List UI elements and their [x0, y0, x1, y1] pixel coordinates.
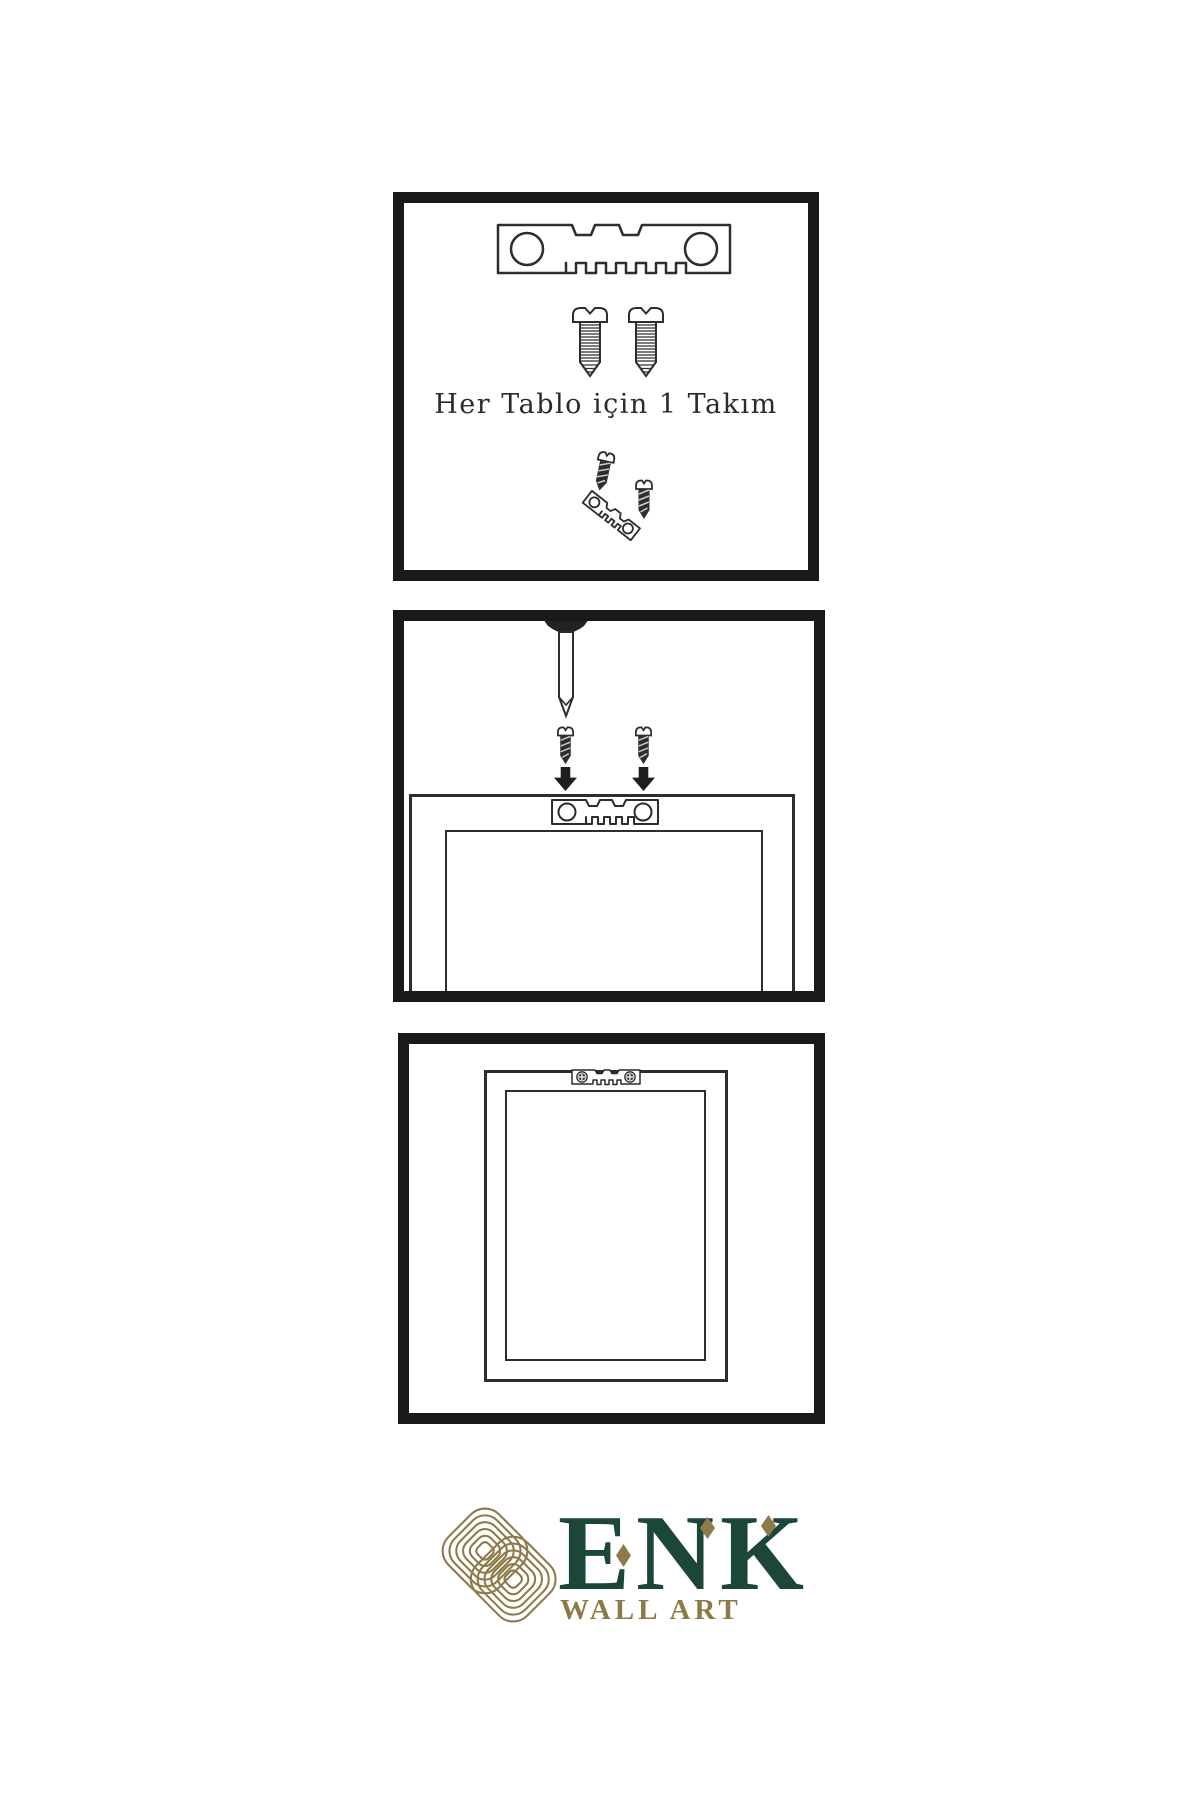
mounted-sawtooth-hanger-with-screws-icon [571, 1069, 641, 1089]
step2-panel [393, 610, 825, 1002]
frame-back-inner-edge [445, 830, 763, 1002]
dark-screw-icon [632, 724, 655, 768]
sawtooth-hanger-icon [550, 798, 660, 826]
down-arrow-icon [554, 767, 577, 792]
step1-panel: Her Tablo için 1 Takım [393, 192, 819, 581]
screw-into-tilted-hanger-icon [576, 447, 674, 557]
instruction-sheet: Her Tablo için 1 Takım [0, 0, 1200, 1800]
step3-panel [398, 1033, 825, 1424]
step1-caption: Her Tablo için 1 Takım [404, 389, 808, 420]
nail-in-wall-icon [541, 619, 591, 723]
screw-pair-icon [570, 304, 666, 381]
down-arrow-icon [632, 767, 655, 792]
logo-title: ENK [558, 1500, 810, 1608]
interlaced-knot-icon [438, 1496, 564, 1634]
hanging-frame-inner-edge [505, 1090, 706, 1361]
dark-screw-icon [554, 724, 577, 768]
logo-subtitle: WALL ART [560, 1594, 742, 1627]
sawtooth-hanger-icon [494, 221, 734, 279]
